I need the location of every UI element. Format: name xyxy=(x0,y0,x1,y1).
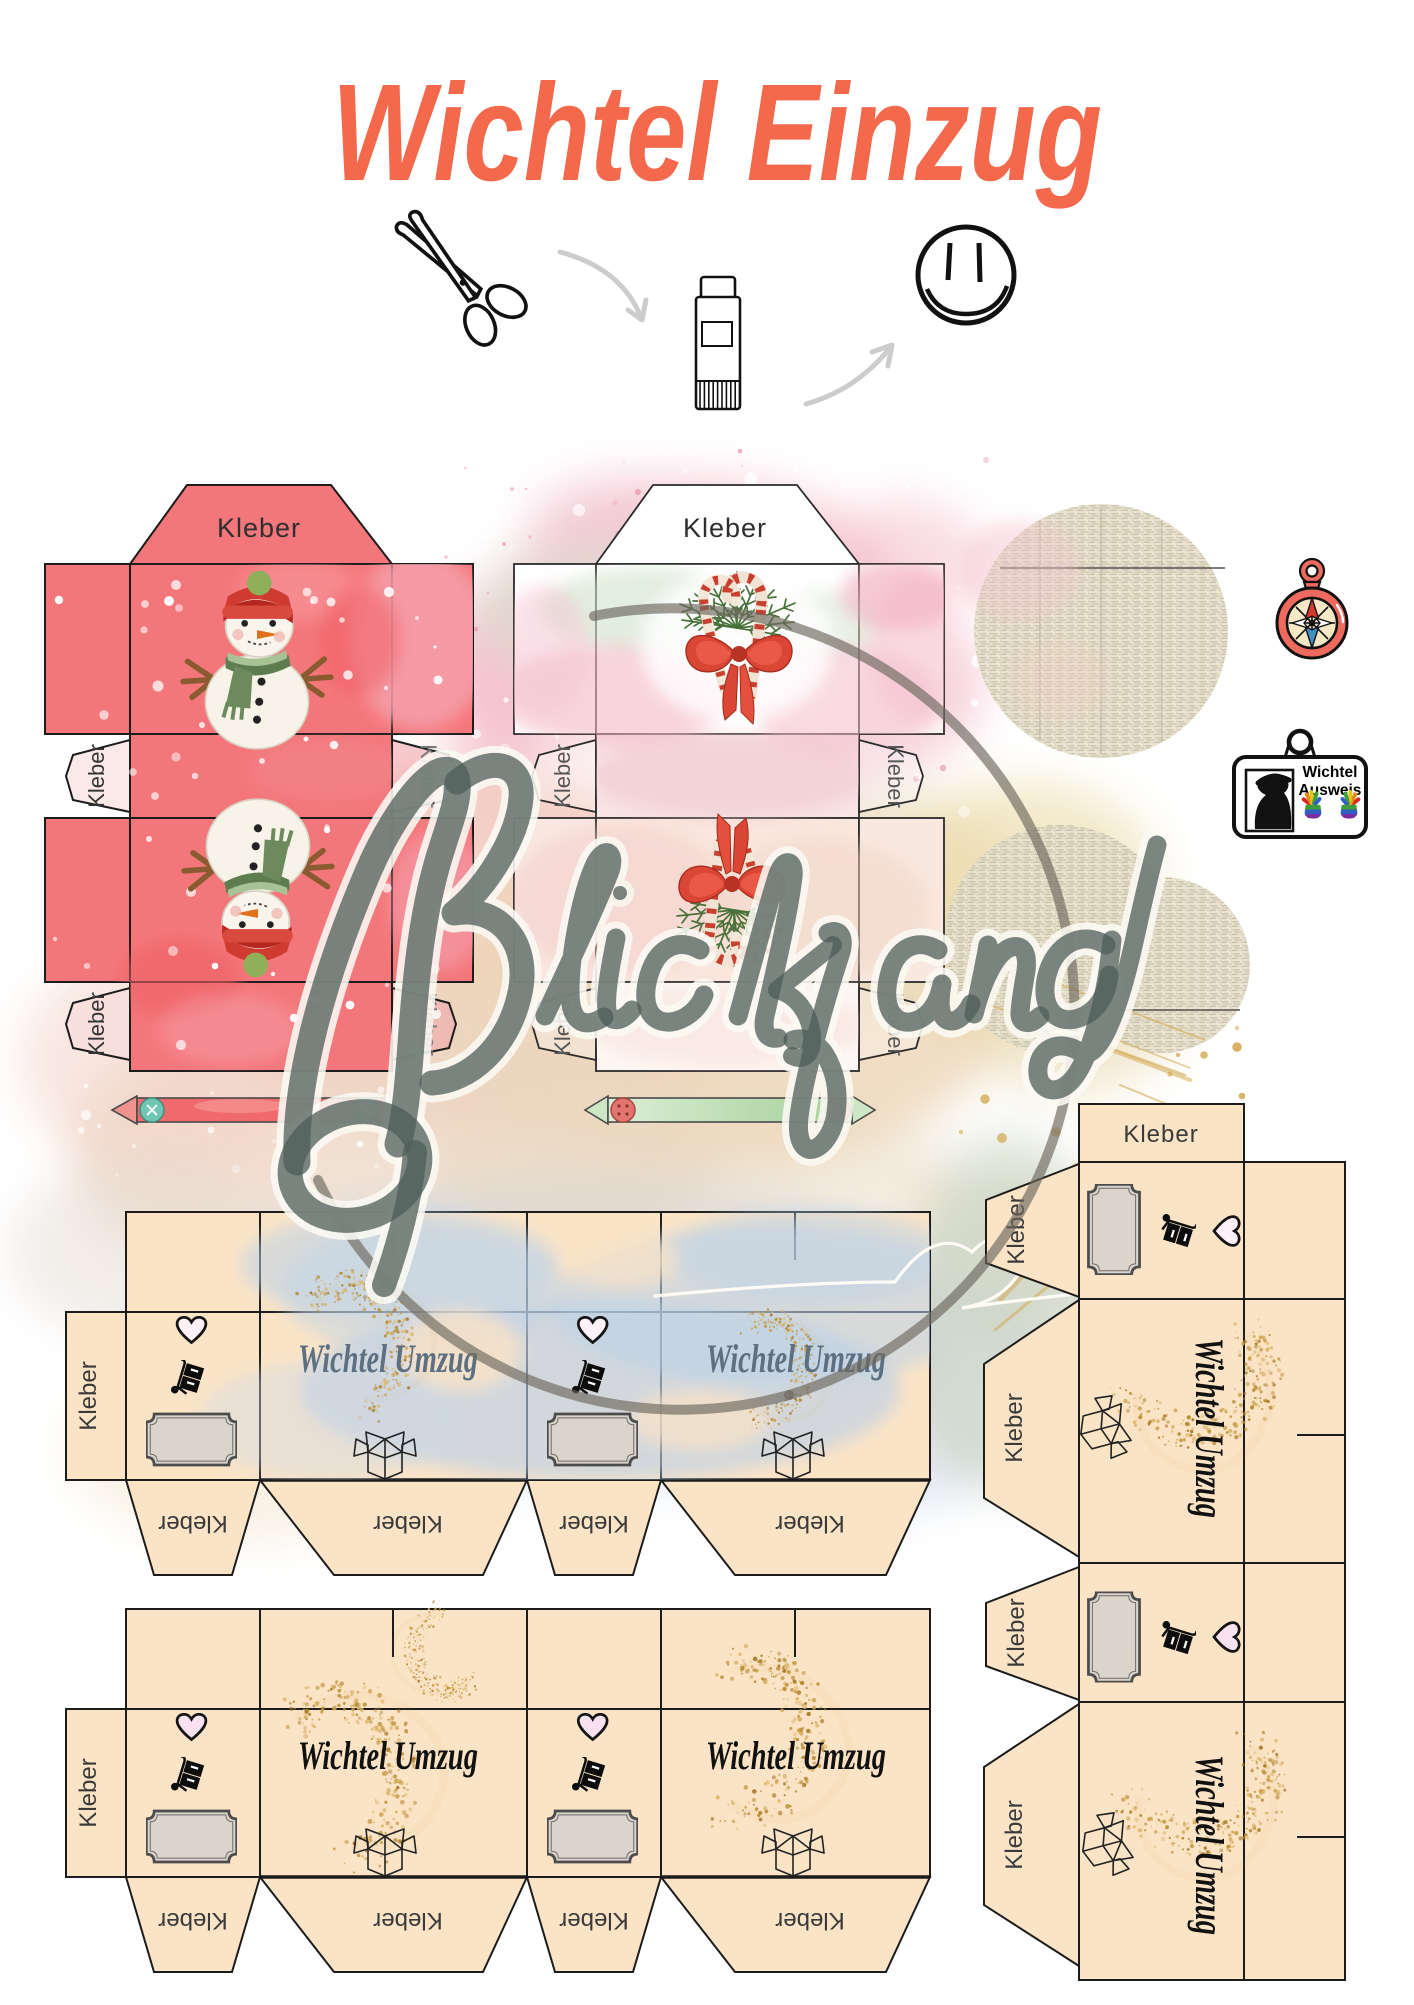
svg-text:Kleber: Kleber xyxy=(1001,1800,1028,1869)
svg-text:Kleber: Kleber xyxy=(84,744,109,808)
svg-text:Wichtel Umzug: Wichtel Umzug xyxy=(706,1733,886,1778)
svg-text:Kleber: Kleber xyxy=(373,1510,442,1537)
svg-text:Wichtel Umzug: Wichtel Umzug xyxy=(1187,1755,1232,1935)
svg-text:Kleber: Kleber xyxy=(158,1510,227,1537)
svg-text:Kleber: Kleber xyxy=(559,1907,628,1934)
svg-text:Kleber: Kleber xyxy=(883,744,908,808)
svg-text:Kleber: Kleber xyxy=(217,513,301,543)
svg-text:Kleber: Kleber xyxy=(75,1361,102,1430)
svg-text:Wichtel Umzug: Wichtel Umzug xyxy=(298,1733,478,1778)
svg-text:Wichtel: Wichtel xyxy=(1303,764,1358,781)
svg-text:Kleber: Kleber xyxy=(683,513,767,543)
svg-text:Kleber: Kleber xyxy=(559,1510,628,1537)
svg-text:Kleber: Kleber xyxy=(1123,1121,1198,1148)
svg-text:Kleber: Kleber xyxy=(1001,1393,1028,1462)
svg-text:Wichtel Einzug: Wichtel Einzug xyxy=(332,56,1102,210)
svg-text:Kleber: Kleber xyxy=(373,1907,442,1934)
svg-text:Kleber: Kleber xyxy=(775,1510,844,1537)
svg-text:Kleber: Kleber xyxy=(75,1758,102,1827)
svg-text:Wichtel Umzug: Wichtel Umzug xyxy=(1187,1338,1232,1518)
svg-text:Kleber: Kleber xyxy=(158,1907,227,1934)
svg-text:Kleber: Kleber xyxy=(84,992,109,1056)
svg-text:Kleber: Kleber xyxy=(1003,1598,1030,1667)
svg-text:Wichtel Umzug: Wichtel Umzug xyxy=(706,1336,886,1381)
svg-text:Kleber: Kleber xyxy=(550,744,575,808)
svg-text:Kleber: Kleber xyxy=(775,1907,844,1934)
